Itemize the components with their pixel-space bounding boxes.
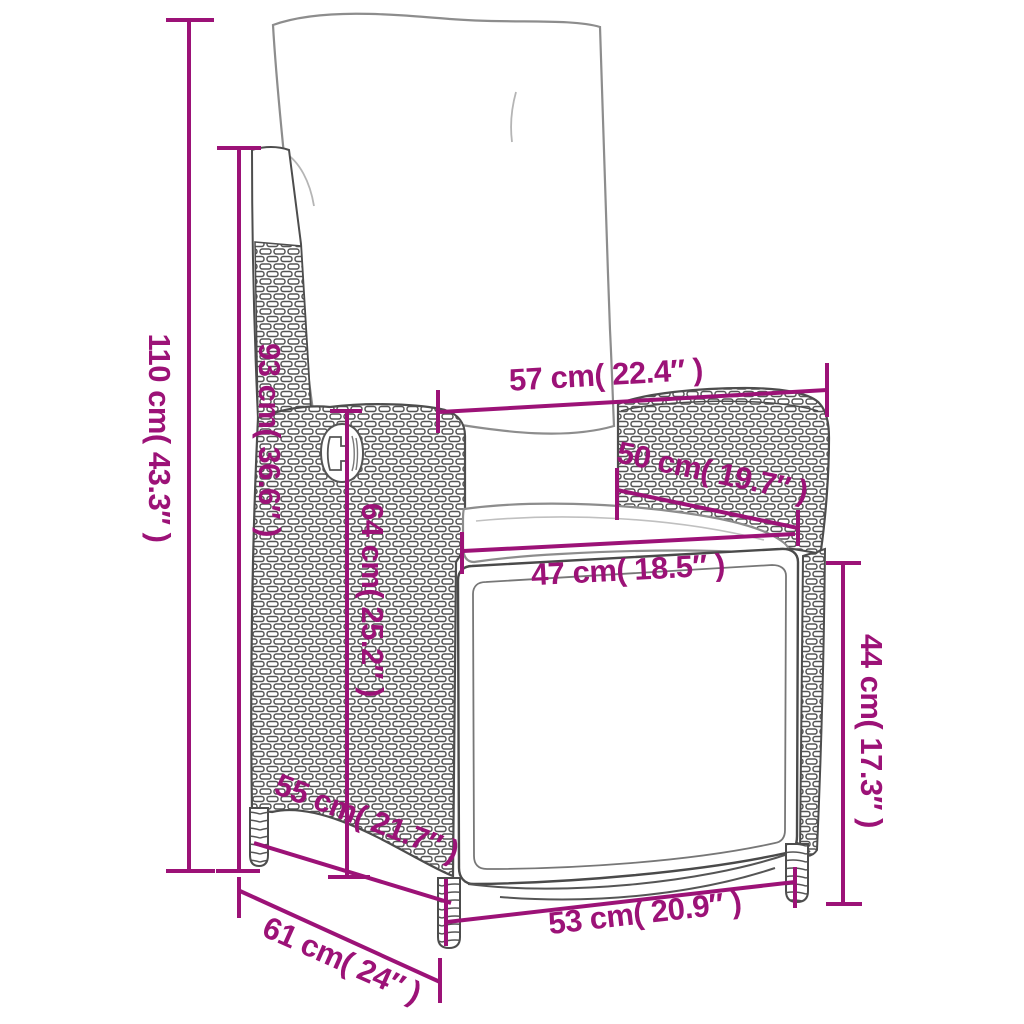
rear-left-leg [250,808,268,866]
dimension-label: 44 cm( 17.3″ ) [854,634,889,828]
dimension-overall-height: 110 cm( 43.3″ ) [142,20,215,871]
chair-dimension-drawing: 110 cm( 43.3″ ) 93 cm( 36.6″ ) 57 cm( 22… [0,0,1024,1024]
dimension-label: 93 cm( 36.6″ ) [252,343,287,537]
recline-handle-icon [321,424,363,482]
dimension-overall-depth: 61 cm( 24″ ) [239,877,440,1010]
dimension-label: 61 cm( 24″ ) [258,910,427,1011]
dimension-diagram-canvas: 110 cm( 43.3″ ) 93 cm( 36.6″ ) 57 cm( 22… [0,0,1024,1024]
front-left-leg [438,878,460,948]
dimension-label: 64 cm( 25.2″ ) [355,503,390,697]
dimension-label: 53 cm( 20.9″ ) [546,884,743,941]
seat-base-outer [458,549,798,884]
dimension-label: 110 cm( 43.3″ ) [142,334,177,543]
dimension-seat-height: 44 cm( 17.3″ ) [826,563,889,904]
rear-right-leg-column [800,549,825,856]
